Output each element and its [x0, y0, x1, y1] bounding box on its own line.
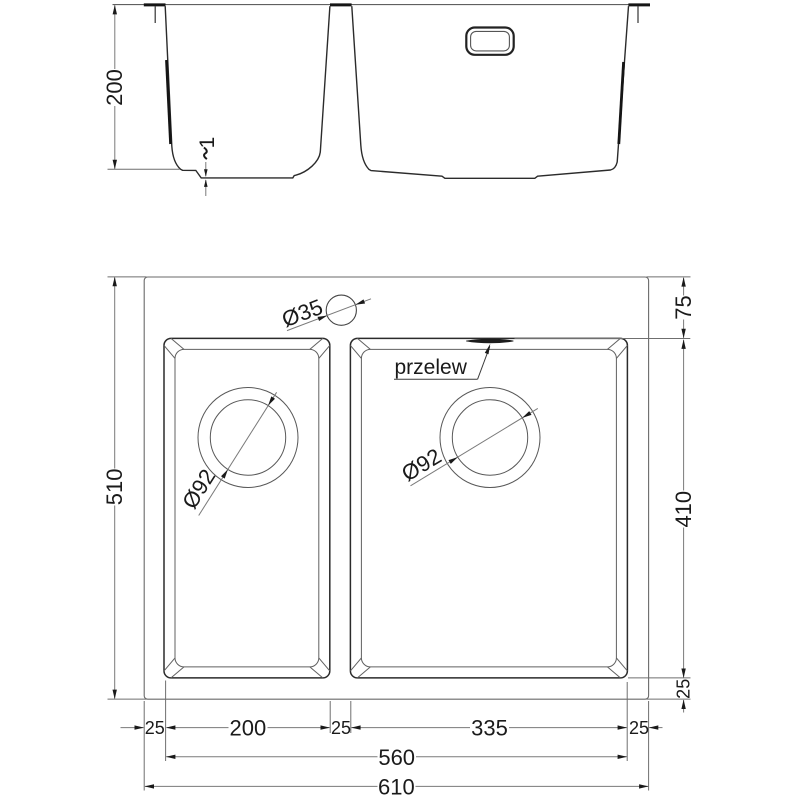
svg-text:przelew: przelew	[395, 356, 468, 379]
svg-text:200: 200	[102, 69, 127, 106]
svg-text:560: 560	[378, 745, 415, 770]
svg-text:1: 1	[196, 137, 219, 149]
svg-text:25: 25	[331, 718, 351, 738]
svg-text:335: 335	[471, 716, 508, 741]
svg-text:200: 200	[230, 716, 267, 741]
svg-text:Ø92: Ø92	[397, 443, 446, 486]
svg-text:75: 75	[671, 295, 696, 319]
svg-text:25: 25	[145, 718, 165, 738]
svg-text:410: 410	[671, 491, 696, 528]
svg-text:510: 510	[102, 469, 127, 506]
svg-text:Ø35: Ø35	[278, 294, 326, 332]
svg-text:610: 610	[378, 775, 415, 800]
svg-text:25: 25	[673, 679, 693, 699]
svg-text:25: 25	[629, 718, 649, 738]
svg-text:Ø92: Ø92	[177, 465, 220, 514]
